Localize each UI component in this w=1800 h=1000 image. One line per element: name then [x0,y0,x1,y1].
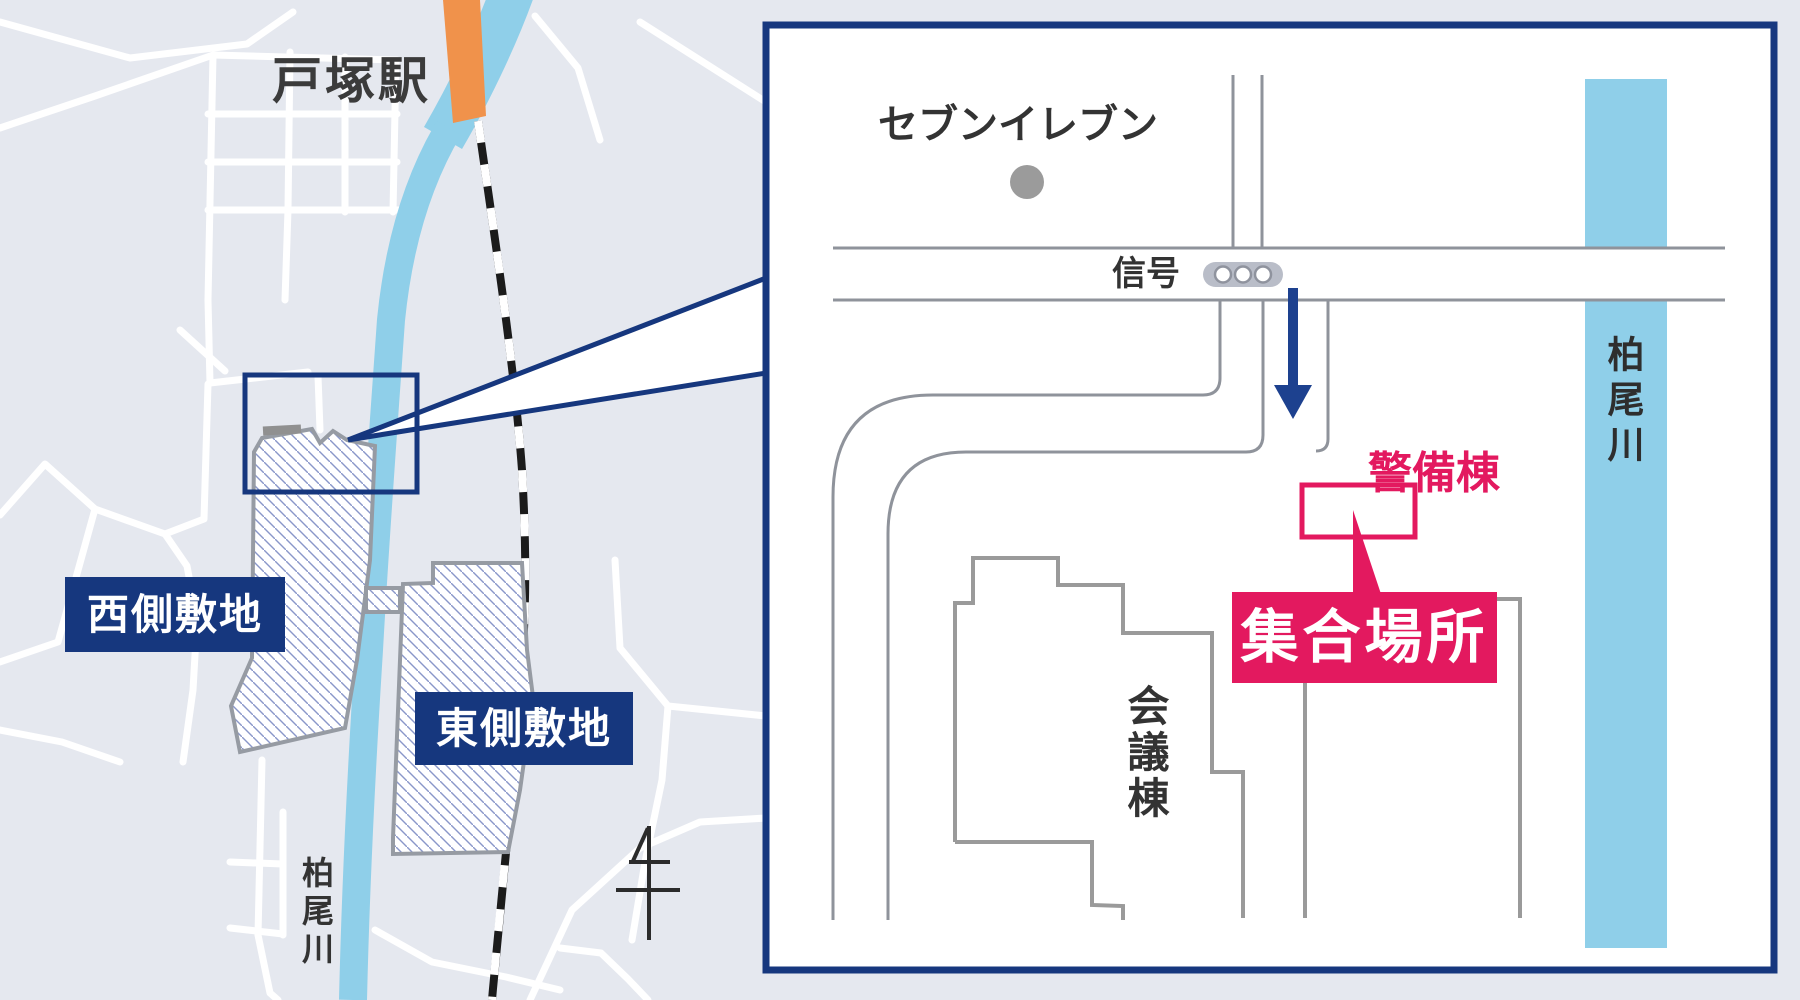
seven-eleven-dot [1010,165,1044,199]
site-edge-stub [263,429,301,431]
access-map: 戸塚駅 西側敷地 東側敷地 柏尾川 セブンイレブン 信号 警備棟 集合場所 会議… [0,0,1800,1000]
station-label: 戸塚駅 [272,56,431,106]
map-canvas [0,0,1800,1000]
meeting-place-label: 集合場所 [1232,592,1497,683]
river-label-inset: 柏尾川 [1604,335,1641,470]
security-building-label: 警備棟 [1368,452,1500,496]
signal-label: 信号 [1112,257,1180,291]
kashio-river-inset [1585,79,1667,948]
traffic-signal-icon [1203,262,1283,287]
conference-building-label: 会議棟 [1124,684,1166,822]
inset-map [766,25,1774,970]
west-site-label: 西側敷地 [65,577,285,652]
river-bridge [366,588,400,612]
seven-eleven-label: セブンイレブン [878,105,1158,145]
east-site-label: 東側敷地 [415,692,633,765]
river-label-left: 柏尾川 [300,856,332,970]
